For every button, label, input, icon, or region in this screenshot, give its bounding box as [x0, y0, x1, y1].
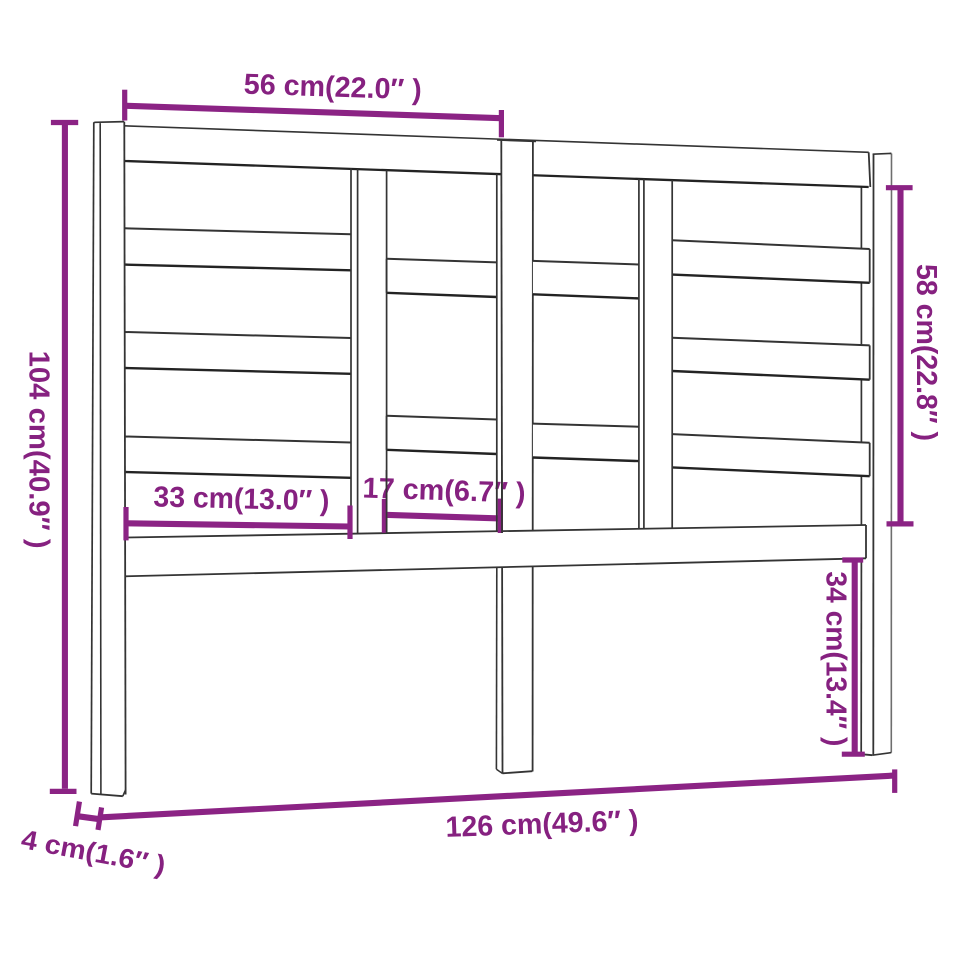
svg-text:104 cm(40.9″ ): 104 cm(40.9″ )	[23, 351, 55, 549]
svg-text:33 cm(13.0″ ): 33 cm(13.0″ )	[153, 481, 330, 517]
svg-text:34 cm(13.4″ ): 34 cm(13.4″ )	[820, 571, 852, 746]
svg-text:56 cm(22.0″ ): 56 cm(22.0″ )	[243, 69, 422, 107]
svg-text:58 cm(22.8″ ): 58 cm(22.8″ )	[910, 264, 942, 441]
